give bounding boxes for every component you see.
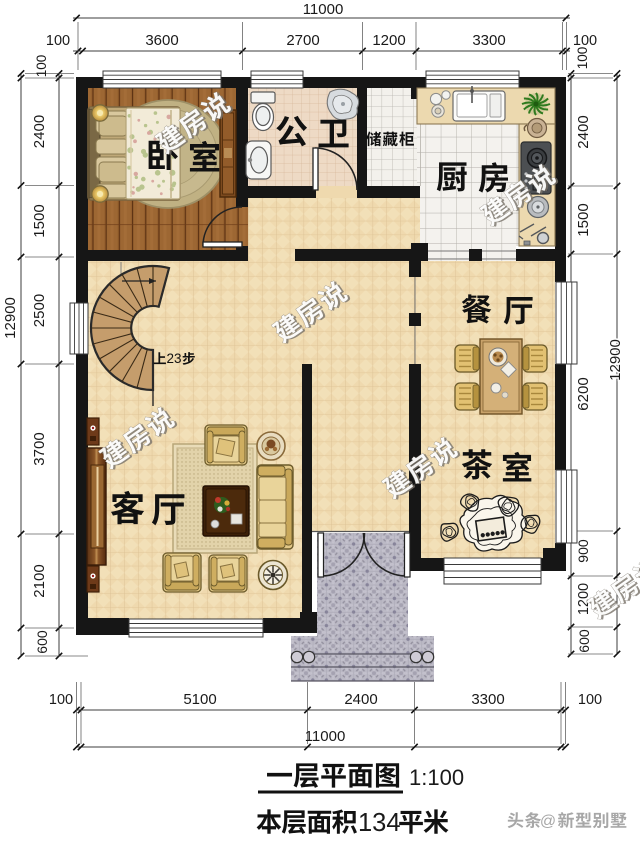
svg-text:134: 134 [358, 809, 401, 837]
svg-text:100: 100 [575, 47, 590, 70]
svg-text:3600: 3600 [145, 32, 178, 49]
svg-text:11000: 11000 [305, 728, 346, 745]
svg-text:2700: 2700 [286, 32, 319, 49]
svg-text:2400: 2400 [31, 115, 48, 148]
svg-text:2400: 2400 [575, 115, 592, 148]
svg-text:3300: 3300 [471, 691, 504, 708]
svg-text:12900: 12900 [2, 297, 19, 339]
svg-text:3700: 3700 [31, 432, 48, 465]
svg-text:12900: 12900 [607, 339, 624, 381]
svg-text:23: 23 [166, 351, 181, 366]
svg-text:100: 100 [46, 33, 70, 49]
svg-text:2100: 2100 [31, 564, 48, 597]
svg-text:2400: 2400 [344, 691, 377, 708]
svg-text:1500: 1500 [31, 204, 48, 237]
svg-text:5100: 5100 [183, 691, 216, 708]
svg-text:100: 100 [34, 55, 49, 78]
svg-text:11000: 11000 [303, 1, 344, 18]
svg-text:2500: 2500 [31, 294, 48, 327]
svg-text:1500: 1500 [575, 203, 592, 236]
svg-text:6200: 6200 [575, 377, 592, 410]
svg-text:3300: 3300 [472, 32, 505, 49]
svg-text:600: 600 [576, 629, 592, 653]
svg-text:100: 100 [573, 33, 597, 49]
svg-text:100: 100 [578, 692, 602, 708]
svg-text:100: 100 [49, 692, 73, 708]
svg-text:1200: 1200 [372, 32, 405, 49]
svg-text:600: 600 [34, 630, 50, 654]
svg-text:@: @ [540, 813, 556, 830]
svg-text:1:100: 1:100 [409, 765, 464, 790]
